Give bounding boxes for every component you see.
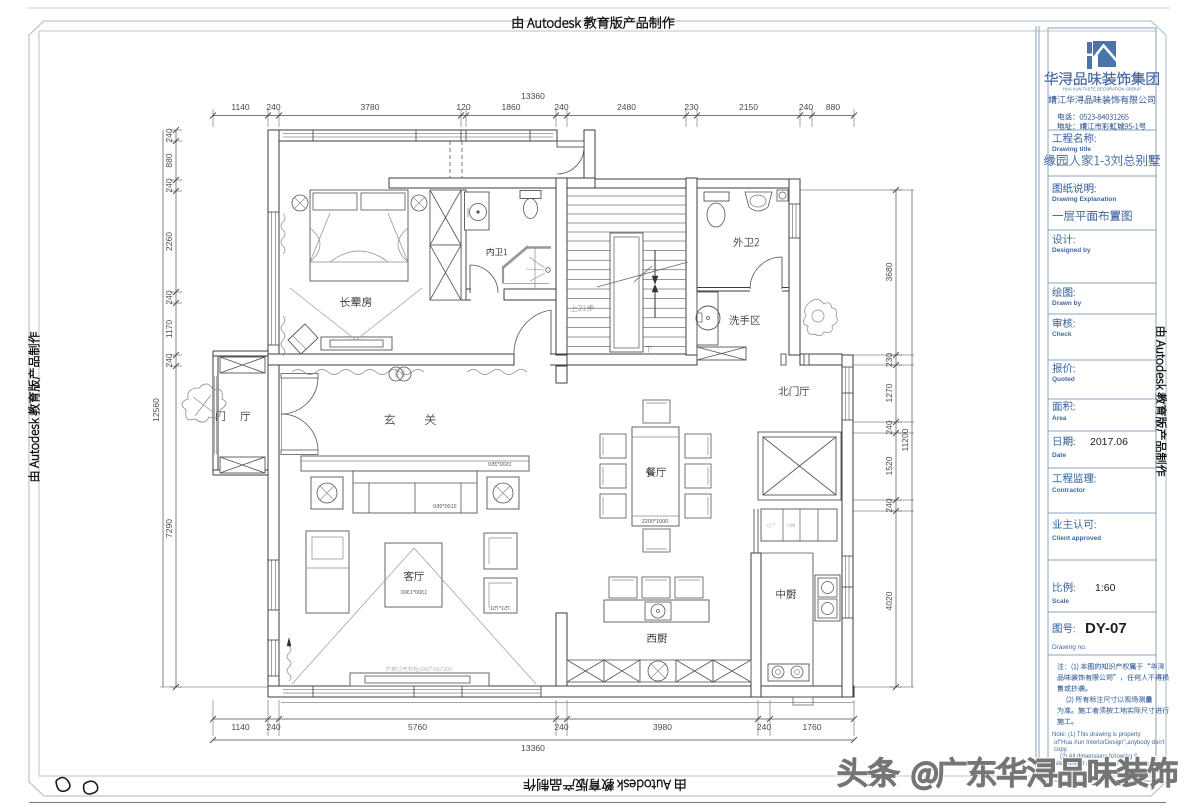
svg-text:1860: 1860 [502, 102, 521, 112]
svg-text:4020: 4020 [884, 591, 894, 610]
svg-text:DY-07: DY-07 [1085, 620, 1127, 637]
svg-text:3780: 3780 [361, 102, 380, 112]
svg-text:1520: 1520 [884, 456, 894, 475]
svg-text:230: 230 [684, 102, 698, 112]
svg-text:240: 240 [164, 128, 174, 142]
svg-text:Drawing title: Drawing title [1052, 146, 1091, 153]
svg-text:12560: 12560 [151, 398, 161, 422]
svg-text:13360: 13360 [521, 91, 545, 101]
svg-text:Check: Check [1052, 331, 1072, 338]
svg-text:1300*1300: 1300*1300 [401, 590, 428, 596]
svg-text:Date: Date [1052, 452, 1066, 459]
svg-text:2480: 2480 [617, 102, 636, 112]
svg-text:240: 240 [164, 353, 174, 367]
svg-text:2017.06: 2017.06 [1090, 436, 1128, 448]
svg-text:Contractor: Contractor [1052, 487, 1086, 494]
svg-text:240: 240 [884, 420, 894, 434]
svg-text:Note: (1) This drawing is prop: Note: (1) This drawing is property [1052, 732, 1141, 738]
svg-text:120: 120 [456, 102, 470, 112]
svg-text:13360: 13360 [521, 743, 545, 753]
svg-text:240: 240 [266, 102, 280, 112]
svg-text:of"Hua Xun InteriorDesign",any: of"Hua Xun InteriorDesign",anybody don't [1054, 740, 1165, 746]
svg-text:11200: 11200 [900, 428, 910, 451]
svg-text:1140: 1140 [231, 102, 250, 112]
svg-text:copy.: copy. [1054, 747, 1068, 753]
svg-text:240: 240 [799, 102, 813, 112]
svg-text:Quoted: Quoted [1052, 376, 1075, 383]
svg-text:Area: Area [1052, 415, 1067, 422]
svg-text:3680: 3680 [884, 262, 894, 281]
svg-text:1760: 1760 [803, 722, 822, 732]
svg-text:Client approved: Client approved [1052, 535, 1101, 542]
svg-text:1:60: 1:60 [1095, 582, 1116, 594]
svg-text:1170: 1170 [164, 320, 174, 339]
svg-text:3980: 3980 [653, 722, 672, 732]
svg-text:Drawing no.: Drawing no. [1052, 644, 1087, 651]
svg-text:2260: 2260 [164, 232, 174, 251]
svg-text:240: 240 [164, 290, 174, 304]
svg-text:2150: 2150 [739, 102, 758, 112]
svg-text:751*751: 751*751 [490, 606, 511, 612]
svg-text:Scale: Scale [1052, 598, 1069, 605]
svg-text:880: 880 [826, 102, 840, 112]
svg-text:5760: 5760 [408, 722, 427, 732]
svg-text:7290: 7290 [164, 519, 174, 538]
svg-text:240: 240 [554, 102, 568, 112]
svg-text:1270: 1270 [884, 383, 894, 402]
svg-text:3100*950: 3100*950 [433, 504, 457, 510]
svg-text:240: 240 [266, 722, 280, 732]
svg-text:Designed by: Designed by [1052, 247, 1091, 254]
svg-text:240: 240 [164, 178, 174, 192]
svg-text:1140: 1140 [231, 722, 250, 732]
svg-text:Drawing Explanation: Drawing Explanation [1052, 196, 1116, 203]
svg-text:1500*350: 1500*350 [488, 462, 512, 468]
svg-text:240: 240 [757, 722, 771, 732]
svg-text:2200*1000: 2200*1000 [642, 519, 669, 525]
svg-text:240: 240 [554, 722, 568, 732]
svg-text:240: 240 [884, 498, 894, 512]
svg-text:880: 880 [164, 153, 174, 167]
svg-text:Drawn by: Drawn by [1052, 300, 1082, 307]
svg-text:HUA XUN TASTE DECORATION GROUP: HUA XUN TASTE DECORATION GROUP [1063, 87, 1141, 92]
